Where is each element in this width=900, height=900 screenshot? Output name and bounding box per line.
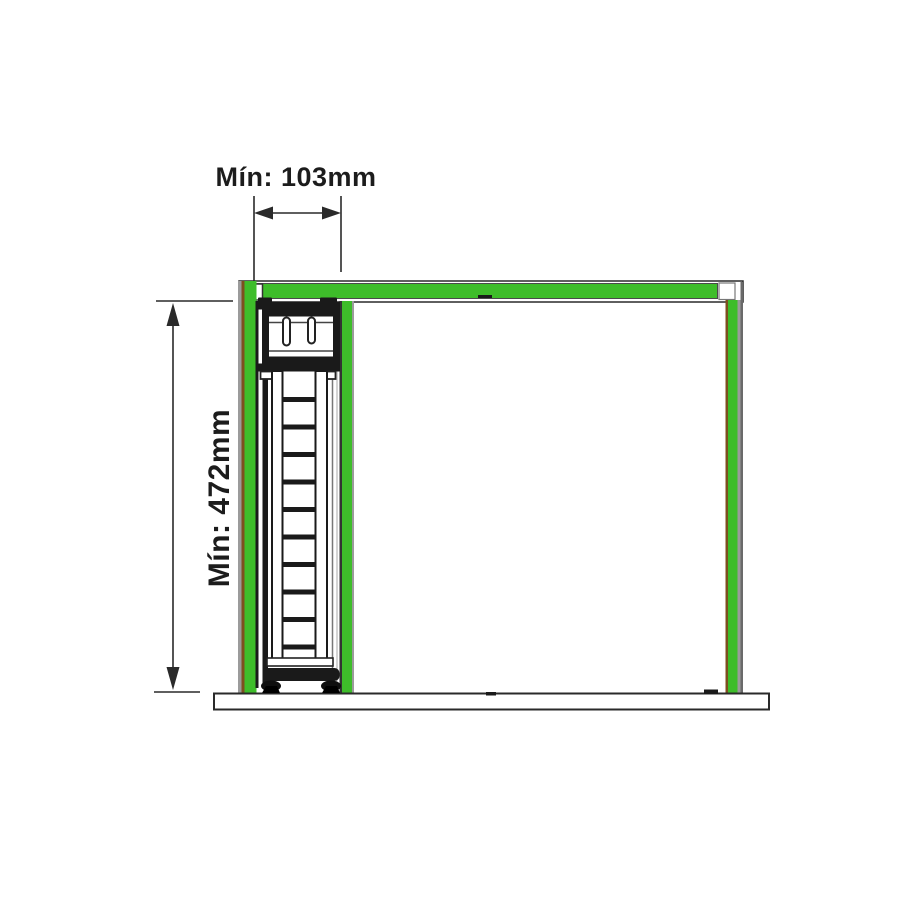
bottom-bar [267,658,333,666]
ladder-rung [283,617,316,622]
top-bracket-clip-right [320,298,337,303]
top-bracket-bar [256,302,341,310]
cabinet-cross-section-diagram: Mín: 103mm Mín: 472mm [0,0,900,900]
base-board-mark-center [486,692,496,696]
right-panel-grey-edge [738,300,741,693]
adjuster-slot-left [283,318,290,346]
technical-drawing-page: Mín: 103mm Mín: 472mm [0,0,900,900]
ladder-rung [283,562,316,567]
bottom-base-slab [263,668,340,681]
divider-panel-green [342,301,352,693]
height-dimension-label: Mín: 472mm [203,409,236,587]
top-panel-right-cap [719,283,735,300]
ladder-rung [283,535,316,540]
left-panel-brown-edge [242,281,245,693]
left-panel-grey-edge [238,281,242,693]
adjuster-slot-right [308,318,315,344]
back-rail-outer [256,301,259,688]
left-panel-green [245,281,257,693]
arrowhead-right-icon [322,207,341,220]
ladder-rung [283,480,316,485]
ladder-rung [283,507,316,512]
ladder-rung [283,645,316,650]
top-bracket-clip-left [258,298,272,303]
ladder-rung [283,590,316,595]
divider-panel-grey-edge [352,301,354,693]
pullout-unit [256,298,342,694]
right-panel-green [728,300,738,693]
height-dimension: Mín: 472mm [154,301,236,692]
base-board-mark-right [704,690,718,695]
arrowhead-down-icon [167,667,180,690]
width-dimension: Mín: 103mm [215,162,376,299]
arrowhead-up-icon [167,303,180,326]
width-dimension-label: Mín: 103mm [215,162,376,192]
base-board [214,694,769,710]
ladder-rail-left [272,371,283,659]
adjuster-box [266,313,337,360]
right-panel-outer-line [741,282,744,693]
ladder-rung [283,397,316,402]
ladder-rail-right [316,371,328,659]
arrowhead-left-icon [254,207,273,220]
ladder-rungs [283,397,316,650]
right-panel-brown-edge [726,300,729,693]
ladder-rung [283,452,316,457]
ladder-rung [283,425,316,430]
back-rail-gap [259,301,263,688]
top-panel-center-mark [478,295,492,298]
